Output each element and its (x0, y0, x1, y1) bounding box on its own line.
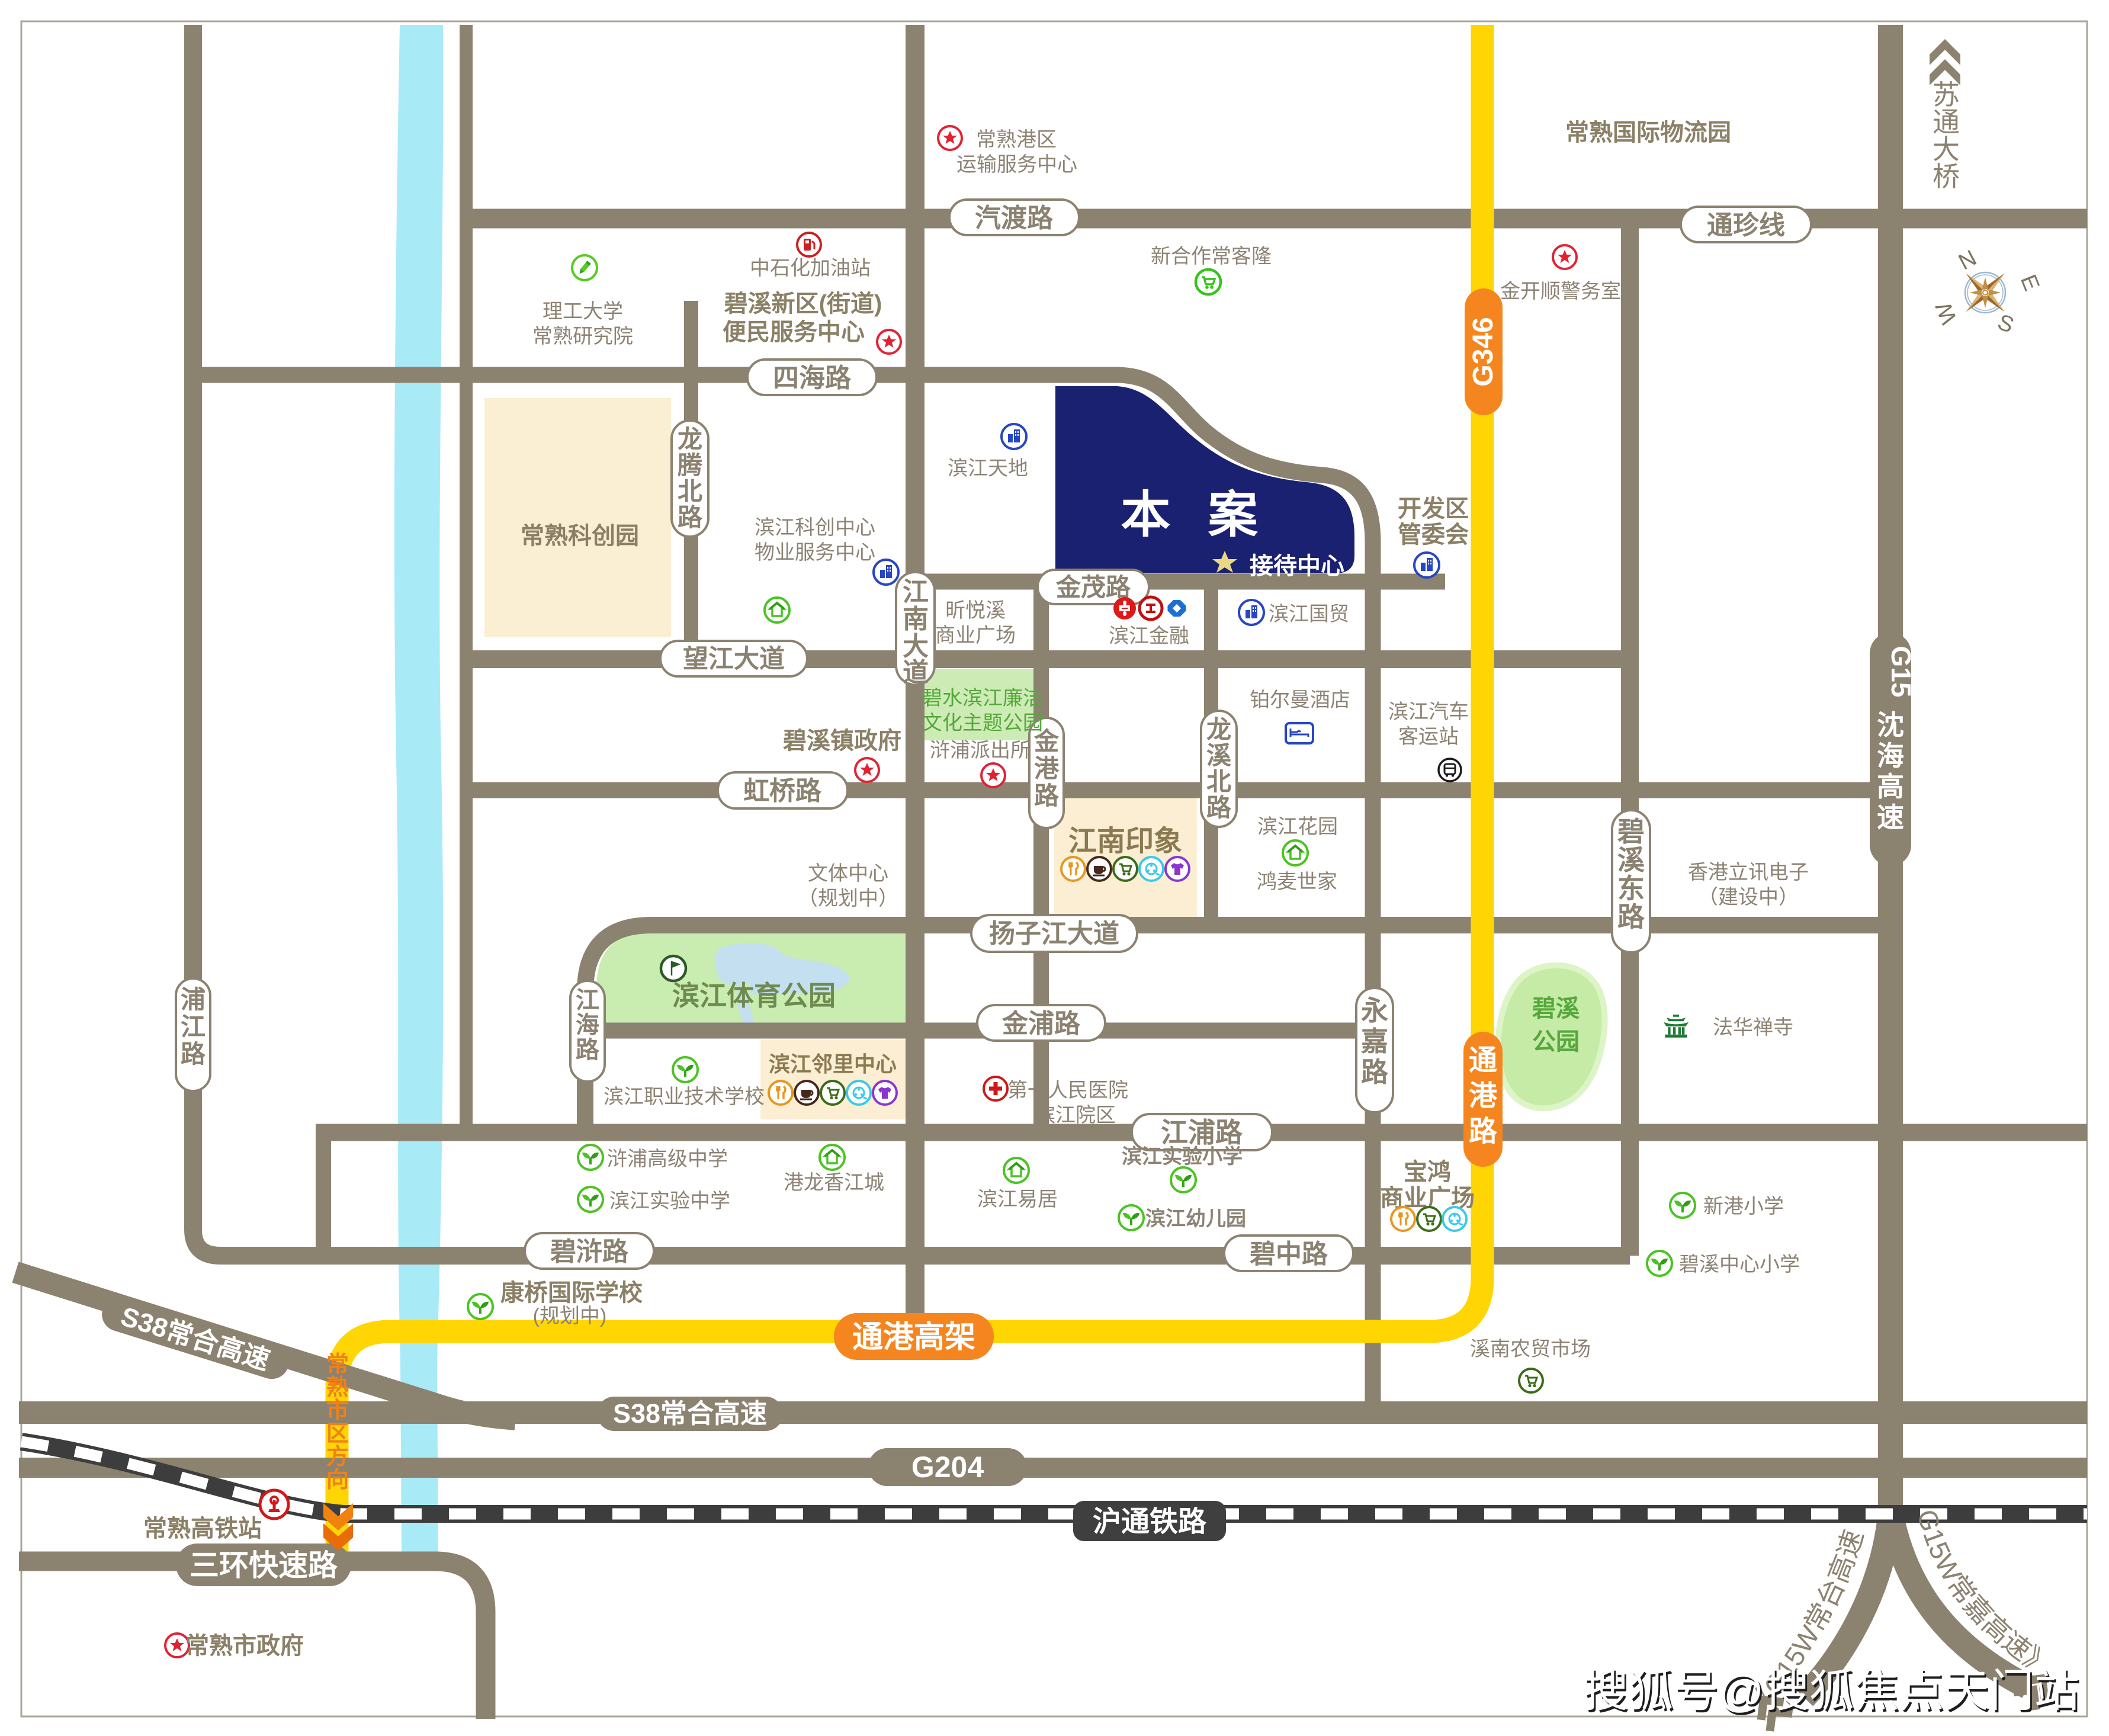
svg-text:江南印象: 江南印象 (1068, 826, 1182, 857)
svg-text:管委会: 管委会 (1398, 522, 1469, 548)
svg-text:第一人民医院: 第一人民医院 (1007, 1079, 1128, 1102)
svg-text:扬子江大道: 扬子江大道 (989, 919, 1119, 948)
svg-text:滨江院区: 滨江院区 (1035, 1104, 1116, 1127)
svg-text:滨江汽车: 滨江汽车 (1388, 701, 1469, 723)
svg-text:沪通铁路: 沪通铁路 (1093, 1506, 1207, 1538)
svg-text:江浦路: 江浦路 (1161, 1117, 1243, 1148)
svg-text:碧溪中心小学: 碧溪中心小学 (1679, 1253, 1800, 1276)
svg-text:浒浦派出所: 浒浦派出所 (930, 739, 1031, 762)
svg-text:昕悦溪: 昕悦溪 (945, 599, 1006, 622)
svg-text:通港路: 通港路 (1469, 1045, 1498, 1147)
svg-text:文化主题公园: 文化主题公园 (922, 712, 1043, 734)
svg-text:常熟研究院: 常熟研究院 (532, 325, 633, 348)
svg-text:滨江体育公园: 滨江体育公园 (672, 980, 836, 1011)
svg-text:香港立讯电子: 香港立讯电子 (1688, 861, 1809, 884)
svg-text:(规划中): (规划中) (533, 1305, 607, 1327)
svg-text:铂尔曼酒店: 铂尔曼酒店 (1250, 689, 1350, 711)
svg-text:江南大道: 江南大道 (903, 577, 929, 687)
svg-text:新港小学: 新港小学 (1703, 1195, 1784, 1218)
svg-text:江海路: 江海路 (576, 987, 600, 1063)
svg-text:法华禅寺: 法华禅寺 (1713, 1016, 1793, 1039)
svg-text:滨江实验中学: 滨江实验中学 (609, 1190, 730, 1212)
svg-text:碧溪: 碧溪 (1532, 996, 1580, 1022)
svg-text:常熟高铁站: 常熟高铁站 (143, 1516, 262, 1542)
svg-text:通珍线: 通珍线 (1707, 211, 1785, 240)
svg-text:苏通大桥: 苏通大桥 (1933, 79, 1960, 192)
svg-text:滨江花园: 滨江花园 (1257, 816, 1338, 838)
svg-text:金开顺警务室: 金开顺警务室 (1500, 280, 1621, 303)
svg-text:G204: G204 (911, 1451, 984, 1484)
svg-text:商业广场: 商业广场 (935, 624, 1016, 647)
svg-text:滨江天地: 滨江天地 (948, 457, 1028, 480)
svg-text:浦江路: 浦江路 (181, 986, 206, 1068)
svg-text:公园: 公园 (1532, 1029, 1580, 1055)
svg-text:滨江金融: 滨江金融 (1109, 625, 1189, 647)
svg-text:宝鸿: 宝鸿 (1404, 1159, 1451, 1185)
svg-text:鸿麦世家: 鸿麦世家 (1257, 871, 1337, 893)
svg-text:滨江职业技术学校: 滨江职业技术学校 (604, 1086, 765, 1108)
svg-text:开发区: 开发区 (1398, 496, 1469, 522)
svg-text:四海路: 四海路 (773, 364, 852, 393)
svg-text:碧溪镇政府: 碧溪镇政府 (783, 728, 901, 754)
svg-text:浒浦高级中学: 浒浦高级中学 (607, 1148, 728, 1170)
svg-text:沈海高速: 沈海高速 (1877, 710, 1904, 833)
svg-text:常熟市政府: 常熟市政府 (185, 1633, 304, 1659)
svg-text:通港高架: 通港高架 (852, 1320, 975, 1355)
svg-text:便民服务中心: 便民服务中心 (723, 319, 865, 345)
svg-text:三环快速路: 三环快速路 (190, 1549, 338, 1582)
svg-text:碧浒路: 碧浒路 (550, 1237, 629, 1266)
svg-text:龙溪北路: 龙溪北路 (1206, 715, 1232, 822)
svg-text:物业服务中心: 物业服务中心 (755, 541, 875, 564)
svg-text:康桥国际学校: 康桥国际学校 (500, 1280, 643, 1306)
svg-text:新合作常客隆: 新合作常客隆 (1151, 245, 1272, 268)
svg-text:港龙香江城: 港龙香江城 (784, 1172, 884, 1194)
svg-text:中石化加油站: 中石化加油站 (750, 257, 871, 280)
svg-text:接待中心: 接待中心 (1250, 553, 1344, 579)
svg-text:龙腾北路: 龙腾北路 (678, 425, 703, 531)
svg-text:S38常合高速: S38常合高速 (613, 1398, 767, 1429)
svg-text:客运站: 客运站 (1398, 726, 1459, 748)
svg-text:（建设中）: （建设中） (1698, 886, 1799, 909)
svg-text:碧水滨江廉洁: 碧水滨江廉洁 (922, 687, 1043, 710)
svg-text:滨江实验小学: 滨江实验小学 (1122, 1145, 1243, 1168)
svg-text:常熟科创园: 常熟科创园 (521, 523, 639, 549)
svg-text:常熟国际物流园: 常熟国际物流园 (1565, 120, 1731, 146)
svg-text:永嘉路: 永嘉路 (1361, 995, 1389, 1087)
svg-text:汽渡路: 汽渡路 (975, 204, 1054, 233)
svg-text:金浦路: 金浦路 (1001, 1009, 1081, 1038)
svg-text:溪南农贸市场: 溪南农贸市场 (1470, 1338, 1591, 1360)
svg-text:滨江国贸: 滨江国贸 (1269, 603, 1349, 625)
svg-text:虹桥路: 虹桥路 (743, 776, 822, 806)
svg-text:滨江幼儿园: 滨江幼儿园 (1145, 1208, 1246, 1230)
svg-text:金港路: 金港路 (1033, 727, 1060, 810)
svg-text:金茂路: 金茂路 (1055, 573, 1131, 601)
svg-text:碧溪东路: 碧溪东路 (1617, 816, 1645, 932)
svg-text:G346: G346 (1468, 317, 1499, 386)
svg-text:运输服务中心: 运输服务中心 (956, 153, 1077, 176)
svg-text:碧溪新区(街道): 碧溪新区(街道) (724, 291, 882, 317)
svg-text:望江大道: 望江大道 (683, 645, 785, 673)
svg-text:G15: G15 (1886, 646, 1917, 698)
svg-text:滨江易居: 滨江易居 (977, 1188, 1058, 1211)
svg-text:本 案: 本 案 (1121, 487, 1269, 543)
svg-text:文体中心: 文体中心 (808, 862, 888, 885)
svg-text:理工大学: 理工大学 (543, 300, 623, 323)
svg-text:搜狐号@搜狐焦点天门站: 搜狐号@搜狐焦点天门站 (1583, 1666, 2079, 1716)
svg-text:常熟市区方向: 常熟市区方向 (326, 1352, 349, 1493)
svg-text:滨江科创中心: 滨江科创中心 (755, 516, 875, 539)
svg-text:（规划中）: （规划中） (798, 887, 898, 910)
svg-text:常熟港区: 常熟港区 (976, 129, 1057, 151)
svg-text:碧中路: 碧中路 (1250, 1240, 1328, 1269)
svg-text:滨江邻里中心: 滨江邻里中心 (769, 1052, 897, 1076)
